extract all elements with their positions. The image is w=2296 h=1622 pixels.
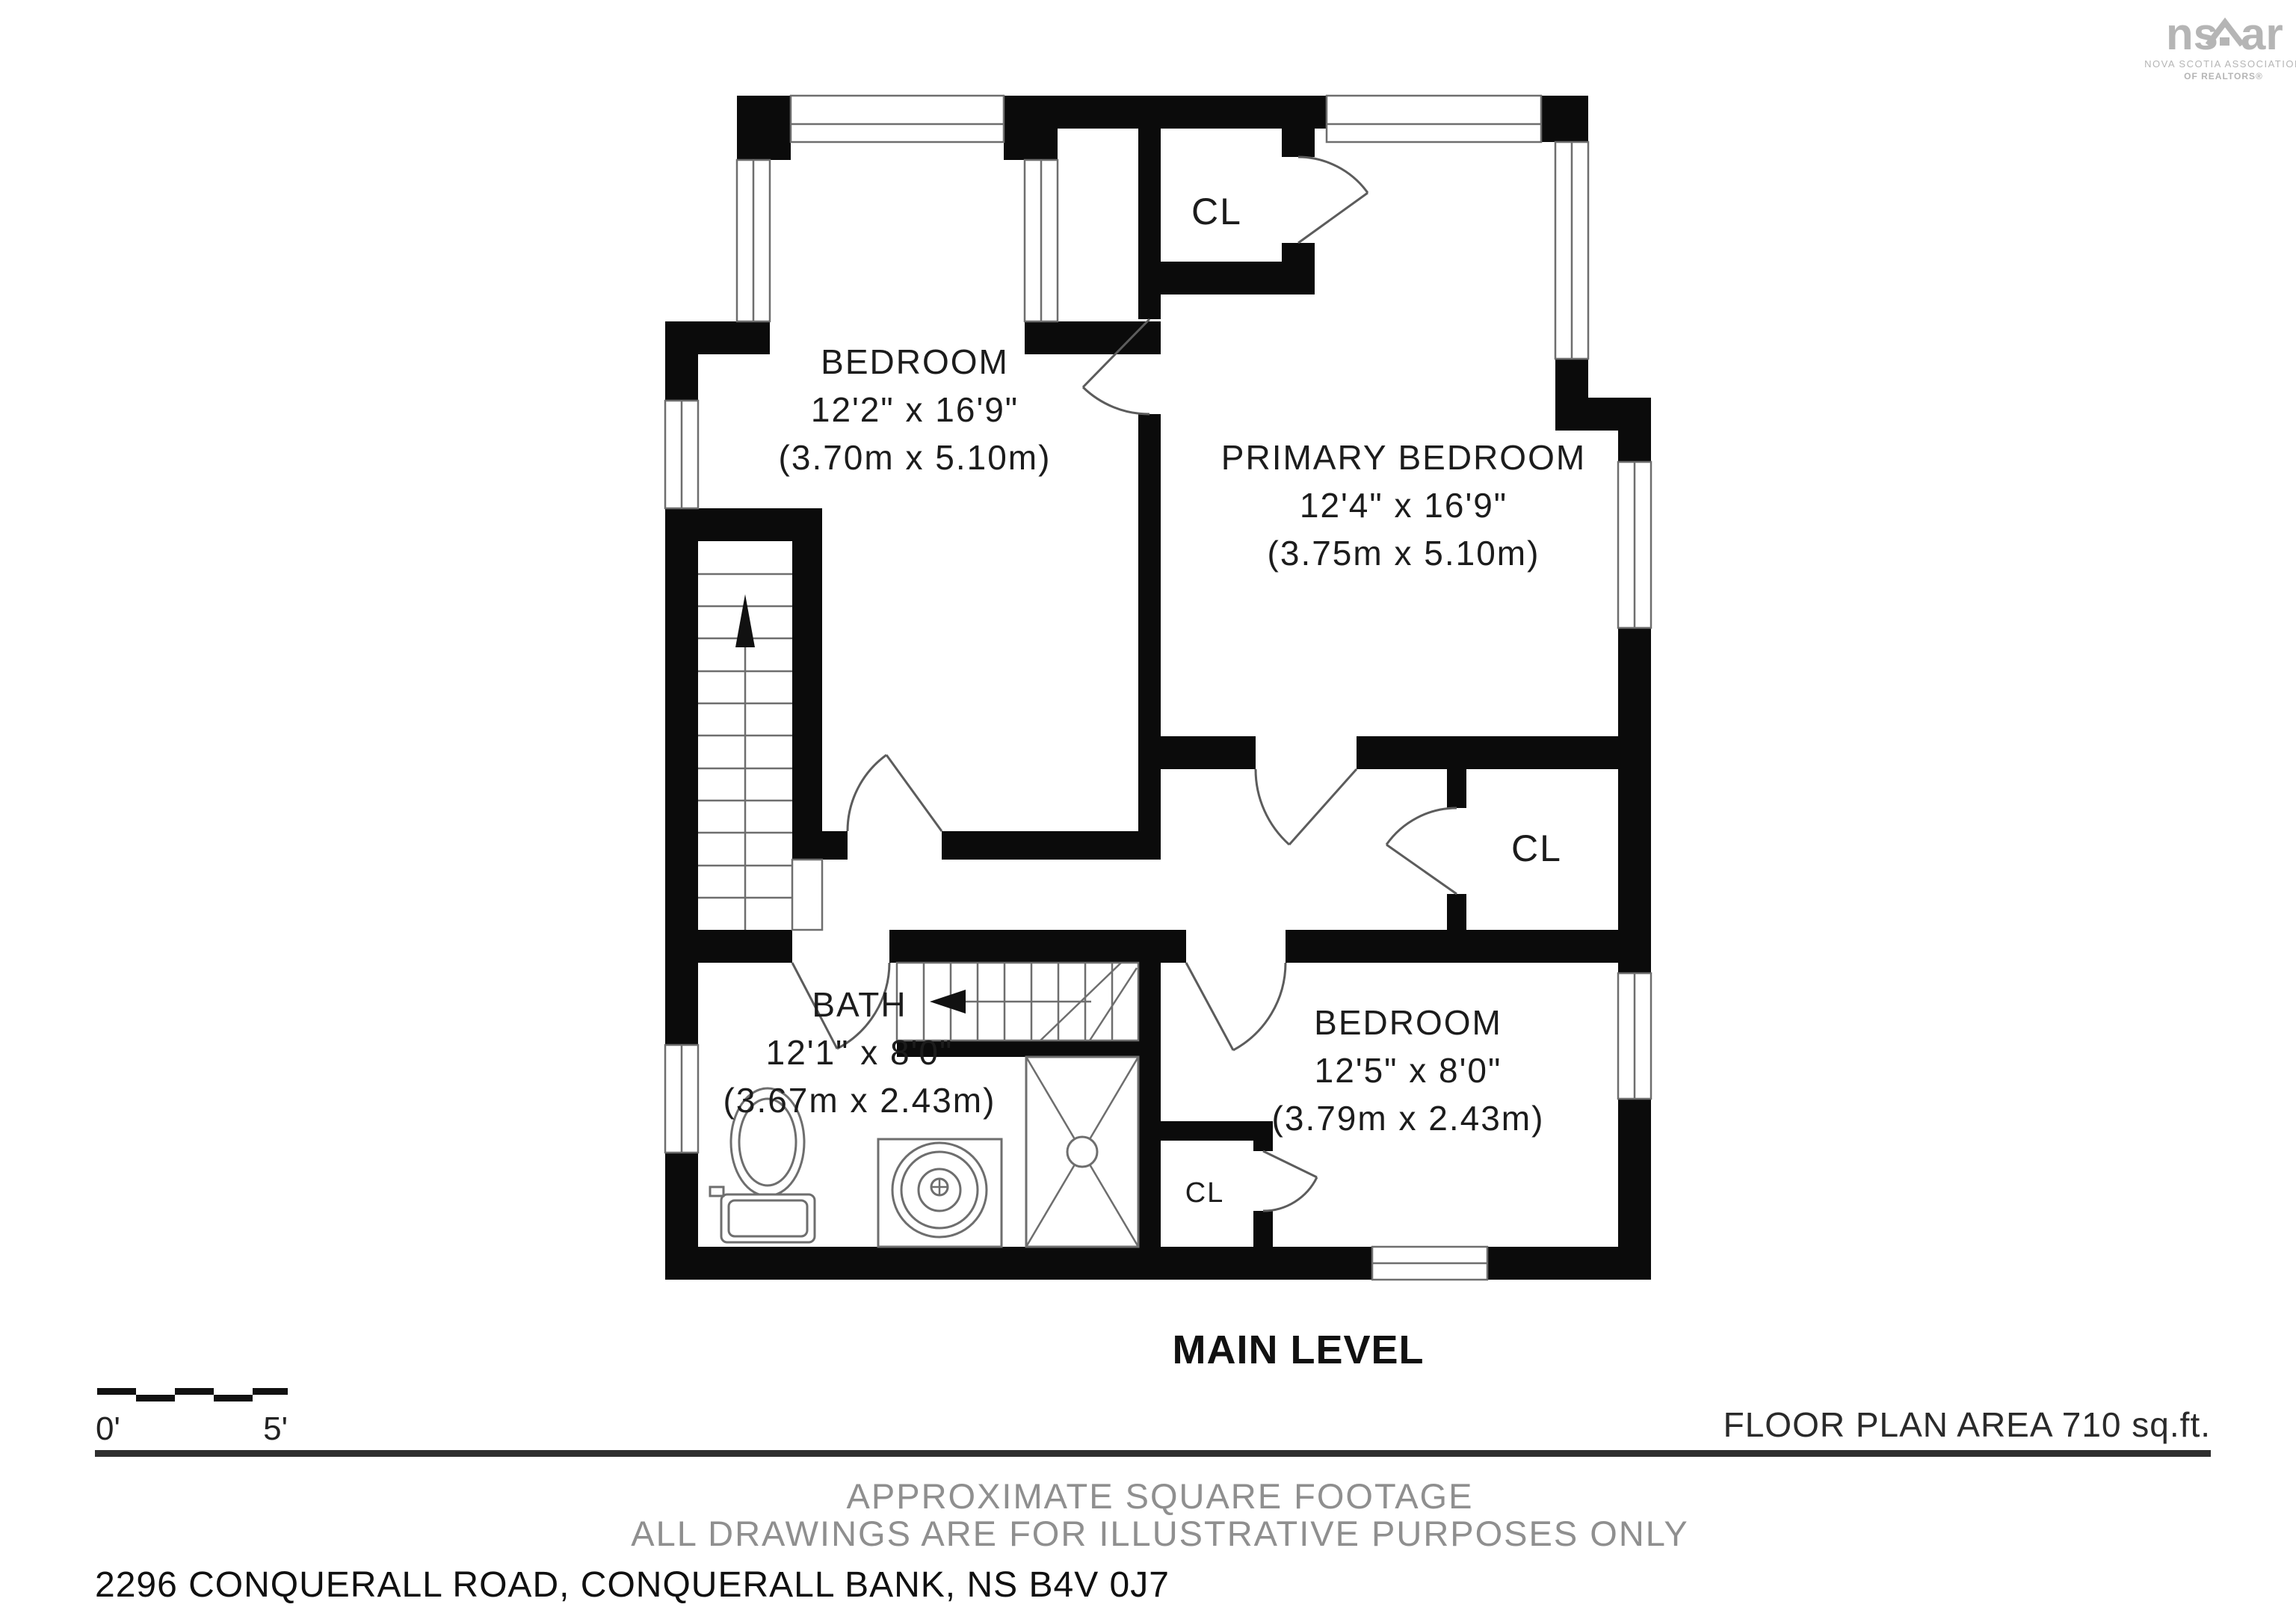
window	[1618, 462, 1651, 628]
bedroom-bottom-name: BEDROOM	[1314, 1003, 1502, 1042]
logo-brand-left: ns	[2166, 9, 2218, 59]
door-swing	[1298, 157, 1368, 243]
wall-segment	[1138, 96, 1161, 319]
door-swing	[1386, 808, 1457, 894]
wall-segment	[1618, 1099, 1651, 1280]
scale-bar: 0' 5'	[96, 1388, 288, 1447]
door-swing	[1186, 963, 1286, 1050]
wall-segment	[1541, 96, 1588, 142]
wall-segment	[1025, 321, 1161, 354]
lower-staircase	[897, 963, 1138, 1040]
bedroom-bottom-dims-ft: 12'5" x 8'0"	[1315, 1051, 1502, 1090]
window	[1618, 973, 1651, 1099]
wall-segment	[1588, 398, 1651, 431]
level-title: MAIN LEVEL	[1172, 1327, 1424, 1372]
window	[665, 401, 698, 508]
wall-segment	[792, 508, 822, 860]
footer-line2: ALL DRAWINGS ARE FOR ILLUSTRATIVE PURPOS…	[631, 1514, 1689, 1553]
logo-caption-line2: OF REALTORS®	[2184, 71, 2263, 81]
wall-segment	[1618, 628, 1651, 973]
window	[1025, 160, 1058, 321]
wall-segment	[1253, 1121, 1273, 1151]
wall-segment	[889, 930, 1138, 963]
bedroom-bottom-dims-m: (3.79m x 2.43m)	[1272, 1099, 1545, 1138]
stairs-down-arrow	[930, 990, 966, 1014]
closet-top-label: CL	[1191, 191, 1242, 232]
floor-plan-page: BEDROOM 12'2" x 16'9" (3.70m x 5.10m) PR…	[0, 0, 2296, 1622]
wall-segment	[698, 930, 792, 963]
wall-segment	[1004, 96, 1140, 129]
scale-end-label: 5'	[263, 1410, 288, 1447]
primary-bedroom-name: PRIMARY BEDROOM	[1221, 438, 1586, 477]
primary-bedroom-dims-m: (3.75m x 5.10m)	[1268, 534, 1540, 573]
wall-segment	[1253, 1211, 1273, 1247]
address-line: 2296 CONQUERALL ROAD, CONQUERALL BANK, N…	[95, 1565, 1170, 1605]
stairs-up-arrow	[735, 594, 755, 647]
window	[1555, 142, 1588, 359]
door-swing	[848, 755, 942, 831]
logo-brand-right: ar	[2241, 9, 2283, 59]
window	[737, 160, 770, 321]
wall-segment	[1138, 262, 1315, 295]
floor-area-label: FLOOR PLAN AREA 710 sq.ft.	[1723, 1405, 2211, 1444]
wall-segment	[1161, 930, 1186, 963]
window	[791, 96, 1004, 142]
wall-segment	[1138, 96, 1327, 129]
floor-plan-drawing: BEDROOM 12'2" x 16'9" (3.70m x 5.10m) PR…	[0, 0, 2296, 1622]
window	[1327, 96, 1541, 142]
bath-dims-m: (3.67m x 2.43m)	[723, 1081, 996, 1120]
wall-segment	[1138, 414, 1161, 860]
door-swing	[1263, 1151, 1317, 1211]
wall-segment	[1447, 769, 1466, 808]
scale-start-label: 0'	[96, 1410, 120, 1447]
wall-segment	[1555, 359, 1588, 431]
wall-segment	[665, 321, 770, 354]
bath-dims-ft: 12'1" x 8'0"	[766, 1033, 954, 1072]
divider-rule	[95, 1450, 2211, 1457]
shower-icon	[1026, 1057, 1138, 1247]
wall-segment	[1357, 736, 1618, 769]
wall-segment	[1138, 930, 1161, 1247]
footer-line1: APPROXIMATE SQUARE FOOTAGE	[847, 1476, 1474, 1516]
nsar-logo: ns ar NOVA SCOTIA ASSOCIATION OF REALTOR…	[2144, 9, 2296, 81]
bedroom-top-dims-ft: 12'2" x 16'9"	[811, 390, 1019, 429]
wall-segment	[792, 831, 848, 860]
sink-vanity-icon	[878, 1139, 1002, 1247]
closet-mid-label: CL	[1511, 827, 1562, 869]
logo-caption-line1: NOVA SCOTIA ASSOCIATION	[2144, 58, 2296, 70]
wall-segment	[665, 1247, 1372, 1280]
wall-segment	[942, 831, 1138, 860]
primary-bedroom-dims-ft: 12'4" x 16'9"	[1300, 486, 1507, 525]
wall-segment	[1282, 129, 1315, 157]
window	[665, 1045, 698, 1153]
bedroom-top-dims-m: (3.70m x 5.10m)	[779, 438, 1052, 477]
closet-bottom-label: CL	[1185, 1177, 1225, 1209]
wall-segment	[1161, 736, 1256, 769]
bath-name: BATH	[812, 985, 907, 1024]
wall-segment	[1286, 930, 1618, 963]
window	[1372, 1247, 1487, 1280]
door-swing	[1256, 769, 1357, 845]
wall-segment	[737, 96, 791, 160]
bedroom-top-name: BEDROOM	[821, 342, 1009, 381]
